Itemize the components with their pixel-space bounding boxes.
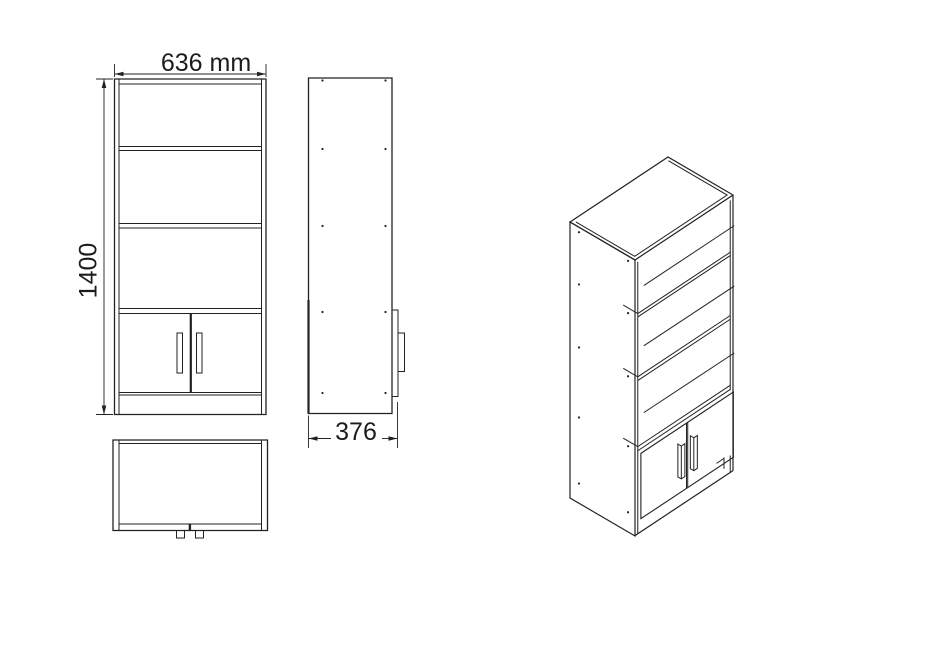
depth-dimension-label: 376 — [296, 420, 416, 445]
width-dimension-label: 636 mm — [146, 51, 266, 76]
dimension-lines — [96, 64, 398, 448]
height-dimension-label: 1400 — [77, 211, 102, 331]
side-view — [309, 78, 405, 414]
drawing-canvas — [0, 0, 951, 672]
technical-drawing-sheet: 636 mm 1400 376 — [0, 0, 951, 672]
isometric-view — [570, 157, 734, 536]
front-view — [115, 79, 267, 415]
top-view — [113, 440, 268, 538]
